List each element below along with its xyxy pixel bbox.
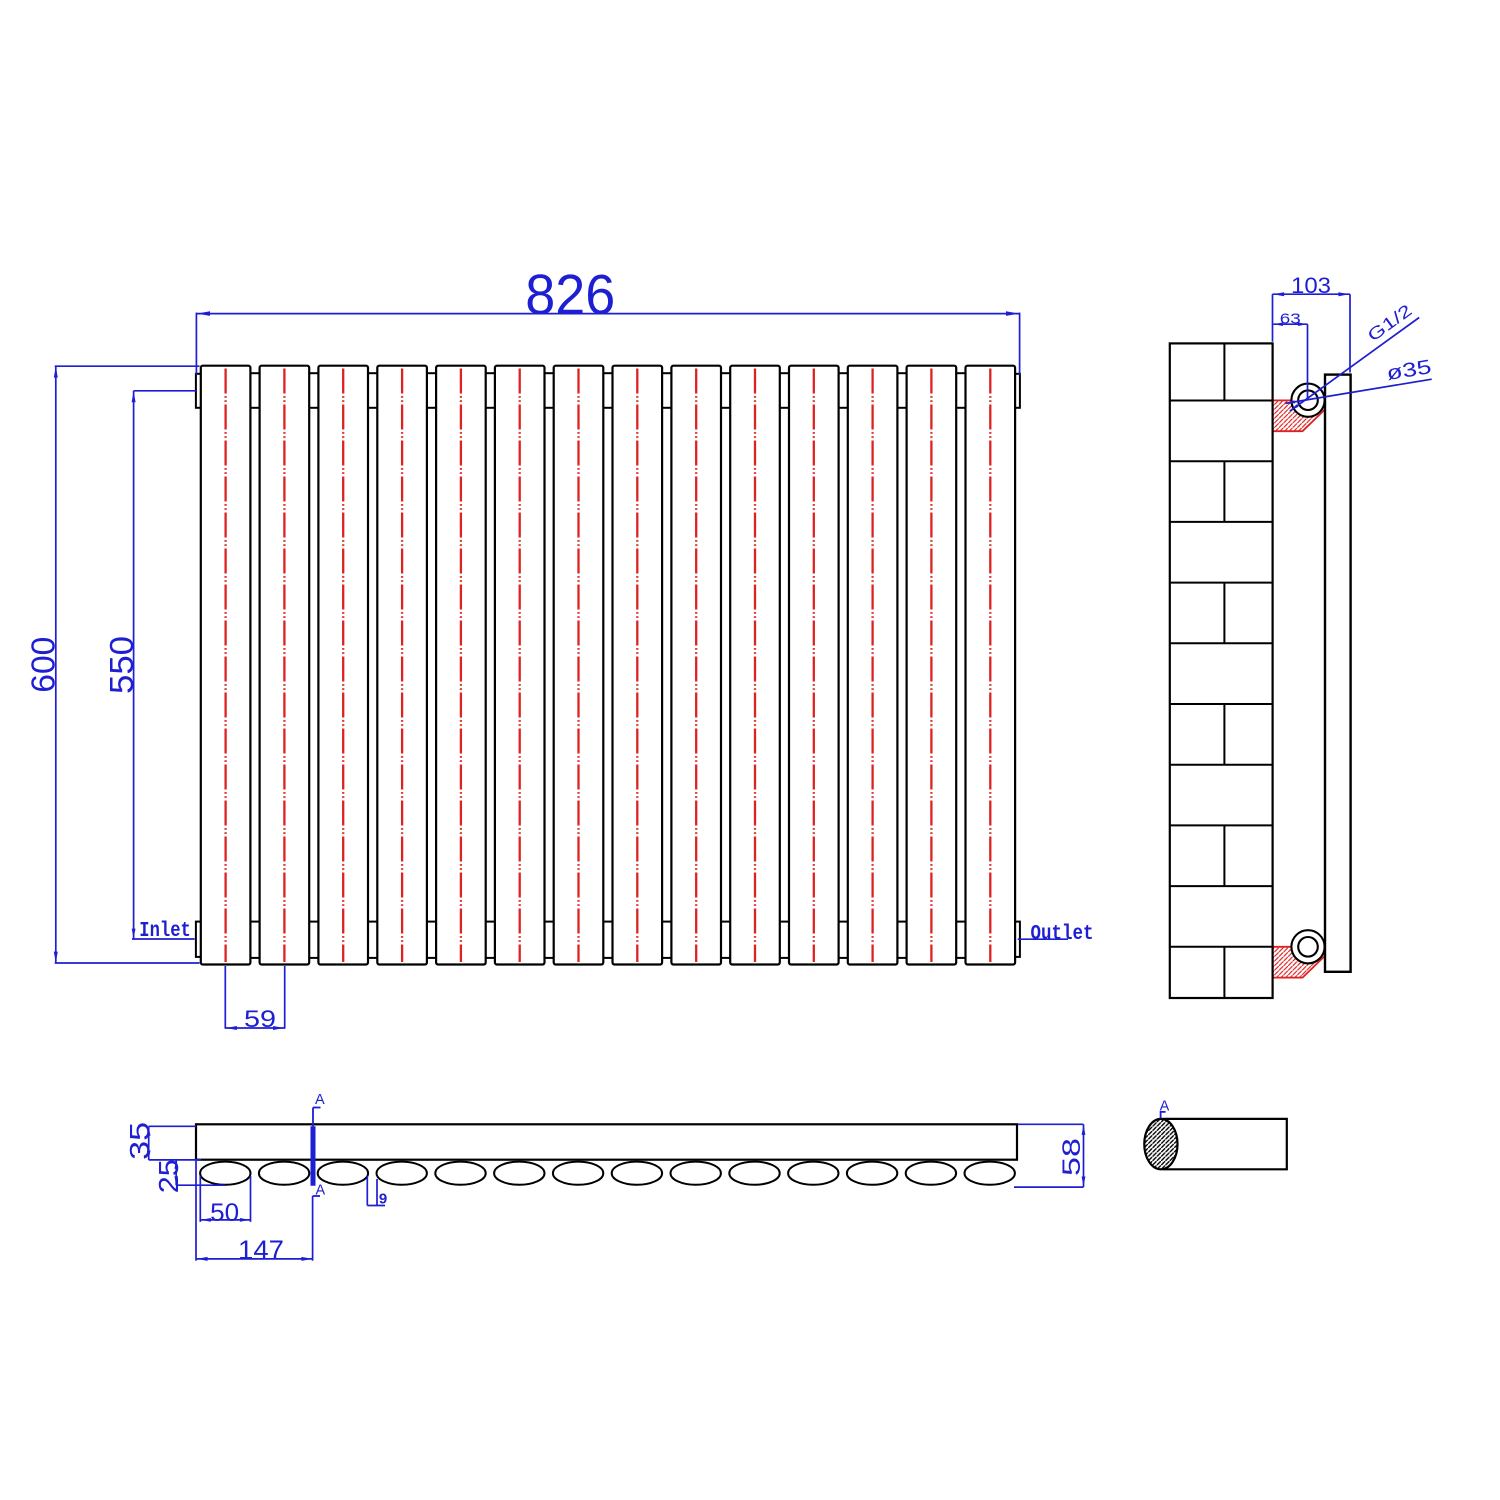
svg-text:35: 35 (124, 1122, 155, 1160)
svg-text:147: 147 (238, 1235, 284, 1265)
svg-text:A: A (315, 1092, 325, 1108)
svg-text:9: 9 (379, 1191, 387, 1208)
svg-text:600: 600 (25, 637, 62, 693)
svg-text:A: A (315, 1182, 325, 1198)
svg-text:50: 50 (210, 1199, 239, 1227)
svg-text:63: 63 (1280, 310, 1301, 327)
svg-text:59: 59 (244, 1006, 276, 1033)
svg-text:550: 550 (103, 636, 140, 694)
svg-text:826: 826 (525, 263, 615, 327)
svg-text:Outlet: Outlet (1031, 923, 1094, 946)
svg-text:58: 58 (1058, 1138, 1086, 1176)
svg-text:25: 25 (153, 1159, 184, 1193)
svg-text:103: 103 (1291, 273, 1331, 298)
